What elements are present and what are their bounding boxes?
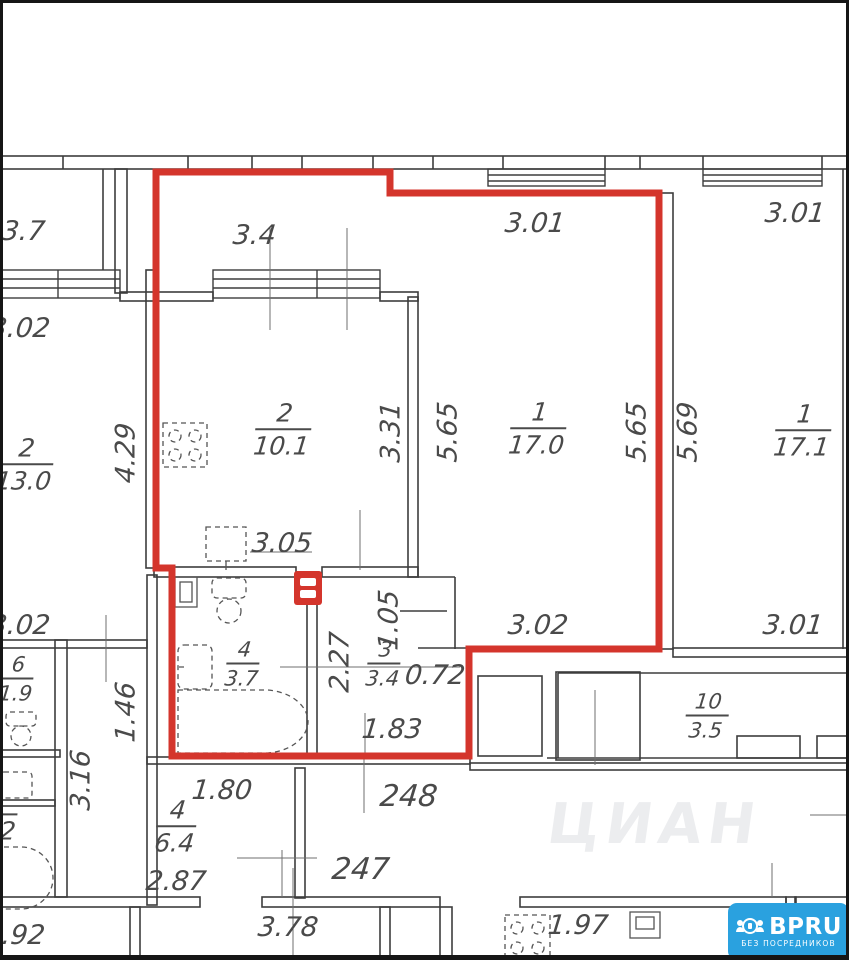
floorplan-canvas: ЦИАН 2 10.1 1 17.0 3 3.4 4 3.7 1 17.1 2 … — [0, 0, 849, 960]
dim-neighbor-depth: 5.69 — [675, 401, 702, 464]
dim-bottom-room-width-lower: 2.87 — [145, 868, 208, 895]
bathtub-small-icon — [0, 847, 53, 909]
dim-bottom-room-width: 1.80 — [191, 777, 254, 804]
room-label-kitchen-neighbor: 2 13.0 — [0, 435, 56, 495]
room-area: 17.0 — [507, 430, 566, 459]
dim-balcony-width: 3.4 — [232, 222, 278, 249]
dim-left-small-depth: 1.46 — [113, 681, 140, 744]
room-label-bath-selected: 4 3.7 — [224, 638, 263, 689]
room-label-balcony-neighbor: 10 3.5 — [683, 690, 731, 741]
photo-edge-top — [0, 0, 849, 3]
dim-bottom-right-width: 1.97 — [547, 912, 610, 939]
toilet-icon — [212, 578, 246, 623]
dim-left-mid-wall: 3.02 — [0, 612, 52, 639]
dim-kitchen-depth: 3.31 — [378, 401, 405, 464]
room-area: 1.9 — [0, 680, 34, 705]
dim-living-width-bottom: 3.02 — [507, 612, 570, 639]
toilet-small-icon — [6, 712, 36, 746]
room-label-kitchen-selected: 2 10.1 — [252, 400, 314, 460]
room-area: 3.4 — [365, 665, 401, 690]
cian-watermark: ЦИАН — [543, 792, 765, 857]
room-area: 13.0 — [0, 466, 53, 495]
dim-kitchen-width-bottom: 3.05 — [251, 530, 314, 557]
logo-brand-text: BPRU — [769, 916, 842, 939]
dim-top-left-room: 3.7 — [1, 218, 47, 245]
dim-living-width-top: 3.01 — [504, 210, 567, 237]
room-number: 2 — [0, 435, 56, 465]
room-number: 1 — [775, 401, 834, 431]
corner-shelf-icon — [175, 577, 197, 607]
stove-icon — [163, 423, 207, 467]
room-number: 2 — [255, 400, 314, 430]
washbasin-small-icon — [0, 772, 32, 798]
room-area: 10.1 — [252, 431, 311, 460]
room-number: 10 — [686, 690, 731, 716]
photo-edge-bottom — [0, 955, 849, 960]
dim-neighbor-width-bottom: 3.01 — [762, 612, 825, 639]
dim-bottom-center-width: 3.78 — [257, 914, 320, 941]
room-area: 3.7 — [224, 665, 260, 690]
room-number: 6 — [0, 653, 36, 679]
bathtub-icon — [178, 690, 308, 753]
dim-top-left-wall: 3.02 — [0, 315, 52, 342]
photo-edge-left — [0, 0, 3, 960]
dim-niche-depth: 1.05 — [376, 589, 403, 652]
room-number: 4 — [226, 638, 262, 664]
dim-living-depth-left: 5.65 — [435, 401, 462, 464]
room-area: 17.1 — [772, 432, 831, 461]
kitchen-sink-icon — [206, 527, 246, 570]
room-area: 6.4 — [153, 828, 196, 857]
room-label-living-neighbor: 1 17.1 — [772, 401, 834, 461]
bpru-logo: BPRU БЕЗ ПОСРЕДНИКОВ — [728, 903, 849, 960]
unit-number-247: 247 — [330, 855, 390, 885]
dim-hall-width-bottom: 1.83 — [361, 716, 424, 743]
logo-tagline-text: БЕЗ ПОСРЕДНИКОВ — [741, 940, 836, 948]
windows-layer — [0, 169, 822, 298]
electrical-panel-icon — [294, 571, 322, 605]
room-label-room-neighbor-bottom: 4 6.4 — [153, 797, 199, 857]
dim-hall-depth: 2.27 — [327, 631, 354, 694]
room-area: 3.5 — [683, 717, 728, 742]
dim-hall-width: 0.72 — [404, 662, 467, 689]
dim-left-depth: 4.29 — [113, 422, 140, 485]
dim-left-lower-depth: 3.16 — [68, 749, 95, 812]
sink-bottom-icon — [630, 912, 660, 938]
dim-bottom-left-partial: .92 — [1, 922, 47, 949]
washbasin-icon — [170, 645, 212, 689]
room-number: 1 — [510, 399, 569, 429]
room-label-wc-neighbor: 6 1.9 — [0, 653, 36, 704]
stove-bottom-icon — [505, 915, 550, 959]
people-lock-icon — [735, 916, 765, 938]
dim-neighbor-width-top: 3.01 — [764, 200, 827, 227]
dim-living-depth-right: 5.65 — [624, 401, 651, 464]
unit-number-248: 248 — [378, 782, 438, 812]
room-label-living-selected: 1 17.0 — [507, 399, 569, 459]
